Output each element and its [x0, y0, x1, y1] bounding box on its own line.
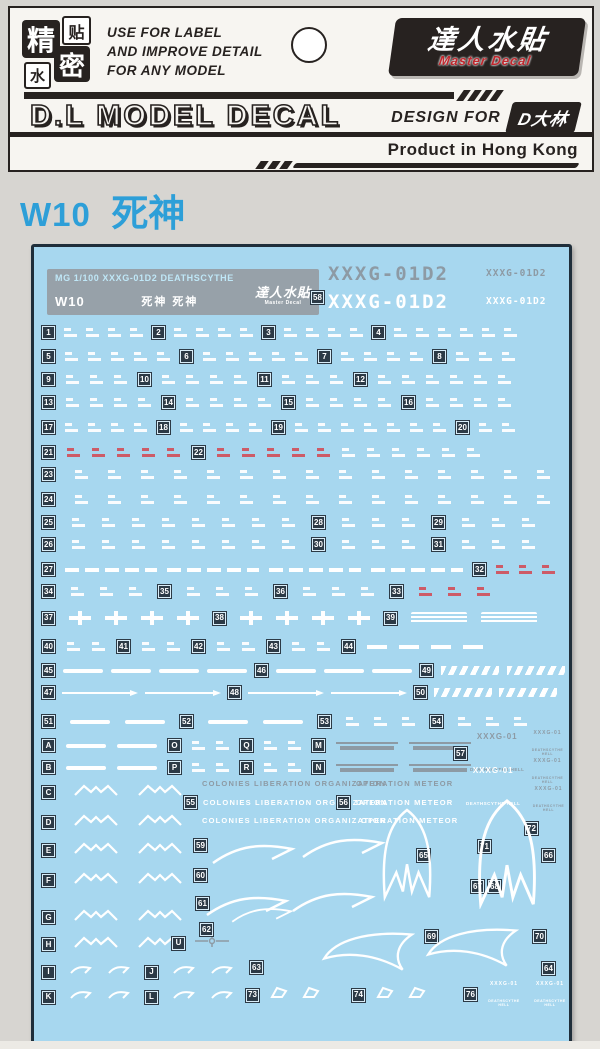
info-code: W10	[55, 294, 85, 309]
wing-decal	[137, 908, 183, 927]
decal-mark	[157, 352, 170, 361]
decal-mark	[306, 495, 319, 504]
code-decal: XXXG-01D2	[328, 291, 449, 313]
decal-mark	[341, 352, 354, 361]
design-for: DESIGN FOR D大林	[391, 102, 578, 133]
hook-decal	[172, 963, 196, 981]
decal-mark	[514, 717, 527, 726]
arrow-decal	[375, 985, 397, 1005]
decal-mark	[378, 398, 391, 407]
decal-mark	[402, 717, 415, 726]
decal-mark	[361, 587, 374, 596]
decal-mark	[431, 645, 451, 649]
tagline-line: FOR ANY MODEL	[107, 61, 263, 80]
decal-mark	[448, 587, 461, 596]
decal-mark	[471, 495, 484, 504]
emblem-decal: XXXG-0102DEATHSCYTHE HELL	[485, 982, 523, 1007]
decal-mark	[402, 375, 415, 384]
badge-31: 31	[432, 538, 445, 551]
decal-mark	[108, 328, 121, 337]
decal-mark	[159, 669, 199, 673]
emblem-decal: XXXG-0102DEATHSCYTHE HELL	[526, 759, 569, 784]
brand-cn-text: 達人水貼	[426, 27, 550, 53]
decal-mark	[167, 642, 180, 651]
hook-decal	[69, 963, 93, 981]
decal-mark	[217, 642, 230, 651]
badge-C: C	[42, 786, 55, 799]
decal-mark	[203, 423, 216, 432]
decal-mark	[145, 690, 221, 696]
swoosh-art	[210, 841, 296, 872]
decal-mark	[288, 741, 301, 750]
sheet-title-name: 死神	[111, 193, 185, 234]
decal-mark	[504, 495, 517, 504]
decal-mark	[167, 448, 180, 457]
decal-mark	[86, 328, 99, 337]
badge-L: L	[145, 991, 158, 1004]
badge-64: 64	[542, 962, 555, 975]
decal-mark	[72, 540, 85, 549]
decal-mark	[504, 470, 517, 479]
badge-56: 56	[337, 796, 350, 809]
decal-mark	[141, 470, 154, 479]
badge-54: 54	[430, 715, 443, 728]
decal-mark	[90, 375, 103, 384]
badge-R: R	[240, 761, 253, 774]
badge-I: I	[42, 966, 55, 979]
wing-decal	[137, 841, 183, 860]
decal-mark	[65, 423, 78, 432]
badge-1: 1	[42, 326, 55, 339]
decal-mark	[242, 642, 255, 651]
decal-mark	[378, 375, 391, 384]
decal-mark	[245, 587, 258, 596]
decal-mark	[458, 717, 471, 726]
decal-row: COLONIES LIBERATION ORGANIZATION	[202, 816, 386, 825]
badge-62: 62	[200, 923, 213, 936]
decal-mark	[216, 763, 229, 772]
decal-mark	[339, 470, 352, 479]
badge-58: 58	[311, 291, 324, 304]
decal-mark	[499, 688, 557, 697]
decal-mark	[537, 470, 550, 479]
decal-mark	[187, 587, 200, 596]
badge-27: 27	[42, 563, 55, 576]
decal-row: 17181920	[42, 421, 515, 434]
decal-mark	[240, 328, 253, 337]
decal-mark	[276, 611, 298, 625]
hook-decal	[69, 988, 93, 1006]
decal-mark	[460, 328, 473, 337]
decal-mark	[196, 328, 209, 337]
tagline: USE FOR LABEL AND IMPROVE DETAIL FOR ANY…	[107, 23, 263, 80]
badge-G: G	[42, 911, 55, 924]
decal-mark	[354, 398, 367, 407]
decal-mark	[108, 495, 121, 504]
badge-34: 34	[42, 585, 55, 598]
decal-mark	[438, 470, 451, 479]
decal-row: 474850	[42, 686, 557, 699]
badge-70: 70	[533, 930, 546, 943]
decal-mark	[267, 448, 280, 457]
decal-mark	[71, 587, 84, 596]
decal-mark	[114, 375, 127, 384]
badge-A: A	[42, 739, 55, 752]
swoosh-art	[290, 889, 376, 920]
decal-mark	[372, 540, 385, 549]
decal-mark	[269, 568, 361, 572]
decal-mark	[367, 645, 387, 649]
decal-mark	[252, 540, 265, 549]
origin-label: Product in Hong Kong	[388, 140, 578, 160]
decal-mark	[92, 448, 105, 457]
badge-38: 38	[213, 612, 226, 625]
decal-mark	[450, 375, 463, 384]
emblem-decal: XXXG-0102DEATHSCYTHE HELL	[531, 982, 569, 1007]
decal-mark	[467, 448, 480, 457]
info-kit-line: MG 1/100 XXXG-01D2 DEATHSCYTHE	[55, 273, 311, 283]
decal-mark	[222, 540, 235, 549]
decal-mark	[371, 568, 463, 572]
decal-mark	[75, 495, 88, 504]
decal-mark	[438, 328, 451, 337]
decal-mark	[426, 375, 439, 384]
decal-row: 76XXXG-0102DEATHSCYTHE HELLXXXG-0102DEAT…	[464, 982, 569, 1007]
wing-decal	[137, 783, 183, 802]
decal-row: G	[42, 908, 183, 927]
badge-22: 22	[192, 446, 205, 459]
decal-mark	[207, 669, 247, 673]
decal-mark	[410, 352, 423, 361]
decal-mark	[317, 642, 330, 651]
decal-row: 2732	[42, 563, 555, 576]
badge-50: 50	[414, 686, 427, 699]
wing-decal	[73, 935, 119, 954]
decal-mark	[306, 375, 319, 384]
decal-mark	[328, 328, 341, 337]
decal-mark	[372, 518, 385, 527]
text-decal: COLONIES LIBERATION ORGANIZATION	[202, 816, 386, 825]
decal-mark	[339, 495, 352, 504]
emblem-decal: XXXG-0102DEATHSCYTHE HELL	[526, 731, 569, 756]
badge-9: 9	[42, 373, 55, 386]
badge-4: 4	[372, 326, 385, 339]
decal-mark	[496, 565, 509, 574]
decal-mark	[90, 398, 103, 407]
decal-mark	[100, 587, 113, 596]
decal-mark	[240, 611, 262, 625]
swoosh-art	[300, 835, 386, 866]
decal-row: 23	[42, 468, 550, 481]
decal-mark	[392, 448, 405, 457]
badge-13: 13	[42, 396, 55, 409]
decal-mark	[141, 495, 154, 504]
tagline-line: USE FOR LABEL	[107, 23, 263, 42]
badge-24: 24	[42, 493, 55, 506]
badge-23: 23	[42, 468, 55, 481]
badge-29: 29	[432, 516, 445, 529]
decal-mark	[217, 448, 230, 457]
arrow-decal	[301, 985, 323, 1005]
arrow-decal	[269, 985, 291, 1005]
decal-mark	[456, 352, 469, 361]
wing-decal	[73, 813, 119, 832]
decal-row: 13141516	[42, 396, 511, 409]
circle-mark	[291, 27, 327, 63]
decal-mark	[186, 398, 199, 407]
decal-mark	[234, 375, 247, 384]
decal-mark	[306, 470, 319, 479]
badge-30: 30	[312, 538, 325, 551]
decal-mark	[282, 518, 295, 527]
code-decal: XXXG-01D2	[328, 263, 449, 285]
decal-mark	[276, 669, 316, 673]
decal-mark	[292, 642, 305, 651]
decal-row: 263031	[42, 538, 535, 551]
decal-row: KL	[42, 988, 234, 1006]
badge-25: 25	[42, 516, 55, 529]
decal-mark	[192, 741, 205, 750]
decal-mark	[249, 423, 262, 432]
badge-46: 46	[255, 664, 268, 677]
decal-mark	[330, 375, 343, 384]
decal-mark	[434, 688, 492, 697]
decal-row: E	[42, 841, 183, 860]
decal-mark	[504, 328, 517, 337]
decal-mark	[332, 587, 345, 596]
decal-mark	[522, 540, 535, 549]
decal-mark	[342, 518, 355, 527]
decal-mark	[248, 690, 324, 696]
badge-35: 35	[158, 585, 171, 598]
badge-D: D	[42, 816, 55, 829]
decal-mark	[542, 565, 555, 574]
decal-mark	[507, 666, 565, 675]
decal-mark	[463, 645, 483, 649]
decal-mark	[70, 720, 110, 724]
decal-mark	[410, 423, 423, 432]
decal-mark	[141, 611, 163, 625]
wing-decal	[137, 871, 183, 890]
decal-mark	[471, 470, 484, 479]
badge-6: 6	[180, 350, 193, 363]
decal-mark	[372, 470, 385, 479]
decal-mark	[167, 568, 259, 572]
decal-mark	[342, 448, 355, 457]
decal-mark	[462, 518, 475, 527]
decal-row: AOQM	[42, 739, 471, 752]
badge-73: 73	[246, 989, 259, 1002]
badge-B: B	[42, 761, 55, 774]
decal-mark	[132, 540, 145, 549]
decal-mark	[336, 764, 398, 772]
hook-decal	[107, 988, 131, 1006]
decal-sheet: MG 1/100 XXXG-01D2 DEATHSCYTHE W10 死神 死神…	[31, 244, 572, 1045]
decal-mark	[65, 568, 157, 572]
decal-mark	[411, 612, 467, 624]
badge-45: 45	[42, 664, 55, 677]
designer-logo: D大林	[505, 102, 582, 133]
badge-40: 40	[42, 640, 55, 653]
decal-row: OPERATION METEOR	[356, 779, 453, 788]
decal-mark	[208, 720, 248, 724]
decal-mark	[479, 352, 492, 361]
decal-mark	[482, 328, 495, 337]
badge-7: 7	[318, 350, 331, 363]
decal-mark	[64, 328, 77, 337]
decal-row: 9101112	[42, 373, 511, 386]
decal-mark	[162, 518, 175, 527]
badge-16: 16	[402, 396, 415, 409]
decal-mark	[192, 763, 205, 772]
decal-mark	[346, 717, 359, 726]
badge-63: 63	[250, 961, 263, 974]
badge-17: 17	[42, 421, 55, 434]
decal-mark	[312, 611, 334, 625]
stamp-char: 水	[24, 62, 51, 89]
decal-mark	[498, 398, 511, 407]
decal-mark	[372, 495, 385, 504]
decal-mark	[441, 666, 499, 675]
decal-mark	[477, 587, 490, 596]
badge-20: 20	[456, 421, 469, 434]
decal-mark	[72, 518, 85, 527]
decal-mark	[62, 690, 138, 696]
sheet-title: W10 死神	[20, 183, 185, 237]
decal-mark	[263, 720, 303, 724]
decal-mark	[442, 448, 455, 457]
decal-mark	[207, 470, 220, 479]
decal-mark	[130, 328, 143, 337]
decal-row: D	[42, 813, 183, 832]
badge-M: M	[312, 739, 325, 752]
decal-mark	[330, 398, 343, 407]
decal-row: U	[172, 934, 229, 952]
decal-mark	[105, 611, 127, 625]
decal-mark	[336, 742, 398, 750]
decal-row: BPRN	[42, 761, 471, 774]
decal-mark	[417, 448, 430, 457]
badge-Q: Q	[240, 739, 253, 752]
badge-36: 36	[274, 585, 287, 598]
badge-47: 47	[42, 686, 55, 699]
decal-row: 74	[352, 985, 429, 1005]
decal-mark	[234, 398, 247, 407]
badge-55: 55	[184, 796, 197, 809]
decal-row: 373839	[42, 611, 537, 625]
decal-mark	[399, 645, 419, 649]
decal-mark	[348, 611, 370, 625]
code-decal: XXXG-01D2	[486, 296, 546, 307]
decal-mark	[374, 717, 387, 726]
decal-mark	[226, 423, 239, 432]
decal-mark	[111, 669, 151, 673]
photo-bottom-strip	[0, 1041, 600, 1049]
badge-11: 11	[258, 373, 271, 386]
decal-mark	[273, 470, 286, 479]
decal-mark	[252, 518, 265, 527]
decal-mark	[502, 423, 515, 432]
decal-mark	[174, 328, 187, 337]
card-title: D.L MODEL DECAL	[30, 100, 341, 133]
decal-mark	[117, 766, 157, 770]
decal-mark	[498, 375, 511, 384]
decal-mark	[66, 766, 106, 770]
decal-mark	[282, 375, 295, 384]
decal-row: 1234	[42, 326, 517, 339]
decal-mark	[258, 398, 271, 407]
decal-mark	[264, 763, 277, 772]
decal-row: 51525354	[42, 715, 527, 728]
decal-mark	[387, 423, 400, 432]
decal-mark	[242, 448, 255, 457]
code-decal: XXXG-01D2	[486, 268, 546, 279]
badge-28: 28	[312, 516, 325, 529]
decal-mark	[177, 611, 199, 625]
decal-mark	[519, 565, 532, 574]
decal-mark	[306, 328, 319, 337]
decal-mark	[216, 741, 229, 750]
decal-mark	[402, 518, 415, 527]
decal-mark	[66, 744, 106, 748]
header-bar	[24, 92, 454, 99]
decal-mark	[174, 495, 187, 504]
decal-mark	[331, 690, 407, 696]
hook-decal	[172, 988, 196, 1006]
decal-row: IJ	[42, 963, 234, 981]
badge-14: 14	[162, 396, 175, 409]
product-photo: { "colors":{ "page_bg":"#d7d5d1","card_b…	[0, 0, 600, 1049]
decal-mark	[102, 518, 115, 527]
decal-mark	[142, 642, 155, 651]
decal-row: C	[42, 783, 183, 802]
badge-43: 43	[267, 640, 280, 653]
decal-row: 2122	[42, 446, 480, 459]
bigwing-art	[462, 797, 552, 914]
decal-mark	[129, 587, 142, 596]
decal-mark	[364, 423, 377, 432]
decal-mark	[324, 669, 364, 673]
sheet-info-box: MG 1/100 XXXG-01D2 DEATHSCYTHE W10 死神 死神…	[47, 269, 319, 315]
decal-mark	[210, 375, 223, 384]
decal-mark	[341, 423, 354, 432]
decal-mark	[192, 540, 205, 549]
decal-mark	[203, 352, 216, 361]
decal-mark	[394, 328, 407, 337]
origin-stripe	[258, 161, 578, 169]
badge-19: 19	[272, 421, 285, 434]
decal-mark	[387, 352, 400, 361]
decal-mark	[162, 375, 175, 384]
decal-mark	[222, 518, 235, 527]
stamp-char: 贴	[62, 16, 91, 45]
badge-33: 33	[390, 585, 403, 598]
badge-41: 41	[117, 640, 130, 653]
precision-stamp-logo: 精 贴 水 密	[22, 16, 98, 86]
decal-mark	[419, 587, 432, 596]
wing-decal	[73, 841, 119, 860]
decal-row: 252829	[42, 516, 535, 529]
decal-mark	[117, 448, 130, 457]
crescent-art	[318, 929, 418, 982]
decal-mark	[66, 398, 79, 407]
decal-mark	[433, 423, 446, 432]
decal-row: H	[42, 935, 183, 954]
decal-mark	[350, 328, 363, 337]
decal-mark	[111, 423, 124, 432]
decal-mark	[65, 352, 78, 361]
decal-mark	[240, 470, 253, 479]
